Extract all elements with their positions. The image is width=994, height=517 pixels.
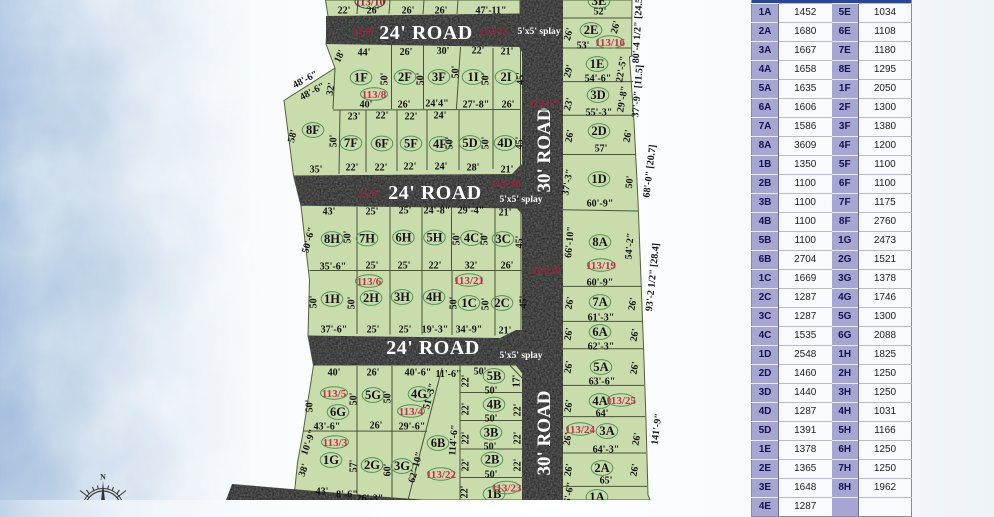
svg-text:30' ROAD: 30' ROAD <box>534 391 555 476</box>
svg-text:22': 22' <box>346 163 359 174</box>
svg-text:2I: 2I <box>500 70 511 84</box>
svg-text:65': 65' <box>600 476 613 487</box>
svg-text:50': 50' <box>624 175 636 189</box>
svg-text:22': 22' <box>513 403 524 416</box>
svg-text:64': 64' <box>596 409 609 420</box>
svg-text:113/19: 113/19 <box>586 260 616 272</box>
svg-text:5'x5' splay: 5'x5' splay <box>499 195 542 205</box>
svg-text:26': 26' <box>562 399 575 414</box>
svg-text:26'-3": 26'-3" <box>357 494 384 501</box>
svg-text:1H: 1H <box>324 292 340 306</box>
svg-text:55'-3": 55'-3" <box>586 108 613 119</box>
svg-text:7H: 7H <box>359 232 375 246</box>
svg-text:22': 22' <box>404 162 417 173</box>
svg-text:25': 25' <box>367 325 380 336</box>
svg-text:50': 50' <box>485 386 498 397</box>
svg-text:6G: 6G <box>330 405 346 419</box>
svg-text:8F: 8F <box>306 123 320 137</box>
svg-text:113/6: 113/6 <box>357 276 382 288</box>
svg-text:22': 22' <box>461 431 472 444</box>
svg-text:8'-6": 8'-6" <box>336 490 358 501</box>
svg-text:25': 25' <box>399 325 412 336</box>
svg-text:54'-6": 54'-6" <box>585 74 612 85</box>
svg-text:50': 50' <box>343 230 354 243</box>
svg-text:50': 50' <box>383 390 394 403</box>
svg-text:4H: 4H <box>426 290 442 304</box>
svg-text:26': 26' <box>630 432 643 447</box>
svg-text:50': 50' <box>305 399 316 412</box>
svg-text:21': 21' <box>499 326 512 337</box>
svg-text:6H: 6H <box>396 231 412 245</box>
svg-text:113/23: 113/23 <box>492 483 522 495</box>
svg-text:113/3: 113/3 <box>323 437 348 449</box>
svg-text:50': 50' <box>485 470 498 481</box>
svg-text:50': 50' <box>474 367 487 378</box>
svg-text:26': 26' <box>502 100 515 111</box>
svg-text:1E: 1E <box>590 57 605 71</box>
svg-text:45': 45' <box>516 72 527 85</box>
svg-text:25': 25' <box>399 206 412 217</box>
svg-text:2C: 2C <box>494 296 509 310</box>
svg-text:3B: 3B <box>484 426 499 440</box>
svg-text:5'x5' splay: 5'x5' splay <box>517 27 560 37</box>
svg-text:43': 43' <box>316 487 329 498</box>
svg-text:26': 26' <box>561 432 574 447</box>
svg-text:21': 21' <box>501 165 514 176</box>
svg-text:28': 28' <box>467 163 480 174</box>
svg-text:22': 22' <box>429 261 442 272</box>
svg-text:7F: 7F <box>344 136 358 150</box>
svg-text:22': 22' <box>376 111 389 122</box>
svg-text:26': 26' <box>370 421 383 432</box>
svg-text:22': 22' <box>513 458 524 471</box>
svg-text:47'-11": 47'-11" <box>475 6 506 17</box>
svg-text:50': 50' <box>484 442 497 453</box>
svg-text:1139: 1139 <box>352 26 374 38</box>
svg-text:50': 50' <box>452 232 463 245</box>
svg-text:26': 26' <box>626 297 639 312</box>
svg-text:29'-4": 29'-4" <box>458 206 485 217</box>
svg-text:2A: 2A <box>594 461 609 475</box>
svg-text:1A: 1A <box>589 490 604 500</box>
svg-text:64'-3": 64'-3" <box>593 445 620 456</box>
svg-text:141'-9": 141'-9" <box>650 413 665 446</box>
svg-text:2G: 2G <box>364 458 380 472</box>
svg-text:53': 53' <box>577 41 590 52</box>
svg-text:26': 26' <box>402 6 415 17</box>
svg-text:113/20: 113/20 <box>531 265 561 277</box>
svg-text:3D: 3D <box>590 88 605 102</box>
svg-text:57': 57' <box>595 144 608 155</box>
svg-text:45': 45' <box>519 295 530 308</box>
svg-text:50': 50' <box>445 136 456 149</box>
svg-text:2H: 2H <box>363 291 379 305</box>
svg-text:22': 22' <box>405 112 418 123</box>
svg-text:1137: 1137 <box>358 188 380 200</box>
svg-text:25': 25' <box>366 207 379 218</box>
svg-text:25': 25' <box>366 261 379 272</box>
svg-text:3C: 3C <box>495 232 510 246</box>
svg-text:8H: 8H <box>324 232 340 246</box>
svg-text:4B: 4B <box>487 398 502 412</box>
svg-text:26': 26' <box>621 129 634 144</box>
svg-text:50': 50' <box>481 136 492 149</box>
svg-text:32': 32' <box>465 261 478 272</box>
svg-text:50': 50' <box>485 414 498 425</box>
svg-text:2B: 2B <box>485 453 500 467</box>
svg-text:2E: 2E <box>584 23 599 37</box>
svg-text:26': 26' <box>562 463 575 478</box>
svg-text:43'-6": 43'-6" <box>314 422 341 433</box>
svg-text:6A: 6A <box>592 325 607 339</box>
svg-text:113/25: 113/25 <box>606 395 636 407</box>
svg-text:N: N <box>100 473 106 482</box>
svg-text:1G: 1G <box>323 453 339 467</box>
svg-text:60': 60' <box>383 463 394 476</box>
svg-text:43': 43' <box>323 207 336 218</box>
svg-text:50': 50' <box>309 295 320 308</box>
svg-text:32': 32' <box>324 82 337 97</box>
svg-text:50': 50' <box>329 134 340 147</box>
svg-text:50': 50' <box>449 296 460 309</box>
svg-text:45': 45' <box>515 136 526 149</box>
svg-text:60'-9": 60'-9" <box>587 199 614 210</box>
svg-text:26': 26' <box>367 368 380 379</box>
svg-text:4C: 4C <box>464 231 479 245</box>
svg-text:68'-0" [20.7]: 68'-0" [20.7] <box>641 144 658 198</box>
svg-text:80'-4 1/2" [24.5]: 80'-4 1/2" [24.5] <box>631 0 646 64</box>
svg-text:44': 44' <box>358 48 371 59</box>
svg-text:61'-3": 61'-3" <box>588 313 615 324</box>
svg-text:60'-9": 60'-9" <box>587 278 614 289</box>
svg-text:40': 40' <box>328 368 341 379</box>
svg-text:37'-6": 37'-6" <box>321 325 348 336</box>
svg-text:24'-8": 24'-8" <box>424 206 451 217</box>
svg-text:26': 26' <box>400 47 413 58</box>
svg-text:113/18: 113/18 <box>491 178 521 190</box>
svg-text:37'-9" [11.5]: 37'-9" [11.5] <box>630 64 646 118</box>
svg-text:24': 24' <box>434 111 447 122</box>
svg-text:26': 26' <box>501 261 514 272</box>
svg-text:24': 24' <box>435 162 448 173</box>
svg-text:26': 26' <box>563 296 576 311</box>
svg-text:2F: 2F <box>398 70 412 84</box>
svg-text:52': 52' <box>594 7 607 18</box>
svg-text:26': 26' <box>435 6 448 17</box>
svg-text:26': 26' <box>398 100 411 111</box>
svg-text:113/15: 113/15 <box>479 26 509 38</box>
svg-text:26': 26' <box>628 361 641 376</box>
svg-text:24' ROAD: 24' ROAD <box>388 182 481 204</box>
svg-text:113/22: 113/22 <box>426 469 456 481</box>
svg-text:19'-3": 19'-3" <box>422 325 449 336</box>
svg-text:26': 26' <box>367 6 380 17</box>
svg-text:1F: 1F <box>354 71 368 85</box>
svg-text:34'-9": 34'-9" <box>456 325 483 336</box>
svg-text:113/4: 113/4 <box>399 406 424 418</box>
svg-text:26': 26' <box>628 463 641 478</box>
svg-text:30' ROAD: 30' ROAD <box>534 108 555 193</box>
svg-text:17': 17' <box>512 374 523 387</box>
svg-text:5D: 5D <box>462 136 477 150</box>
svg-text:1C: 1C <box>461 296 476 310</box>
svg-text:26': 26' <box>563 129 576 144</box>
svg-text:35': 35' <box>310 165 323 176</box>
svg-text:24' ROAD: 24' ROAD <box>379 22 472 44</box>
svg-text:6B: 6B <box>431 436 446 450</box>
svg-text:93'-2 1/2" [28.4]: 93'-2 1/2" [28.4] <box>644 242 662 311</box>
svg-text:1I: 1I <box>467 70 478 84</box>
svg-text:22': 22' <box>472 46 485 57</box>
svg-text:50': 50' <box>380 72 391 85</box>
svg-text:45': 45' <box>515 235 526 248</box>
svg-text:113/21: 113/21 <box>454 275 484 287</box>
svg-text:5F: 5F <box>404 137 418 151</box>
svg-text:50': 50' <box>451 65 462 78</box>
svg-text:50': 50' <box>481 297 492 310</box>
svg-text:11'-6": 11'-6" <box>435 369 461 380</box>
svg-text:50': 50' <box>481 72 492 85</box>
svg-text:62'-3": 62'-3" <box>588 342 615 353</box>
svg-text:6F: 6F <box>375 137 389 151</box>
svg-text:25': 25' <box>398 261 411 272</box>
svg-text:24' ROAD: 24' ROAD <box>386 337 479 359</box>
svg-text:21': 21' <box>501 47 514 58</box>
svg-text:5G: 5G <box>365 388 381 402</box>
svg-text:63'-6": 63'-6" <box>589 377 616 388</box>
svg-text:8A: 8A <box>592 235 607 249</box>
svg-text:23': 23' <box>348 112 361 123</box>
svg-text:7A: 7A <box>592 295 607 309</box>
svg-text:22': 22' <box>375 163 388 174</box>
svg-text:30': 30' <box>437 46 450 57</box>
svg-text:29'-6": 29'-6" <box>399 422 426 433</box>
svg-text:21': 21' <box>499 208 512 219</box>
svg-text:24'4": 24'4" <box>425 99 448 110</box>
svg-text:5A: 5A <box>593 360 608 374</box>
svg-text:35'-6": 35'-6" <box>320 262 347 273</box>
svg-text:5'x5' splay: 5'x5' splay <box>499 351 542 361</box>
svg-text:26': 26' <box>628 328 641 343</box>
svg-text:2D: 2D <box>591 124 606 138</box>
svg-text:3A: 3A <box>599 424 614 438</box>
svg-text:40'-6": 40'-6" <box>405 368 432 379</box>
svg-text:50': 50' <box>480 232 491 245</box>
svg-text:3F: 3F <box>432 70 446 84</box>
svg-text:113/16: 113/16 <box>595 37 625 49</box>
svg-text:4D: 4D <box>497 136 512 150</box>
svg-text:22': 22' <box>461 458 472 471</box>
svg-text:5B: 5B <box>487 369 502 383</box>
svg-text:26': 26' <box>562 327 575 342</box>
svg-text:22': 22' <box>461 402 472 415</box>
svg-text:22': 22' <box>513 431 524 444</box>
svg-text:40': 40' <box>360 100 373 111</box>
svg-text:22': 22' <box>461 374 472 387</box>
svg-text:27'-8": 27'-8" <box>463 100 490 111</box>
svg-text:54'-2": 54'-2" <box>623 232 636 260</box>
svg-text:50': 50' <box>347 296 358 309</box>
svg-text:57': 57' <box>349 459 360 472</box>
svg-text:5H: 5H <box>427 231 443 245</box>
svg-text:3H: 3H <box>394 290 410 304</box>
svg-text:113/17: 113/17 <box>529 98 559 110</box>
svg-text:50': 50' <box>416 72 427 85</box>
svg-text:22': 22' <box>460 485 471 498</box>
svg-text:113/5: 113/5 <box>322 388 347 400</box>
svg-text:22': 22' <box>338 6 351 17</box>
svg-text:26': 26' <box>562 360 575 375</box>
svg-text:50': 50' <box>349 392 360 405</box>
svg-text:1D: 1D <box>591 172 606 186</box>
svg-text:3G: 3G <box>394 459 410 473</box>
